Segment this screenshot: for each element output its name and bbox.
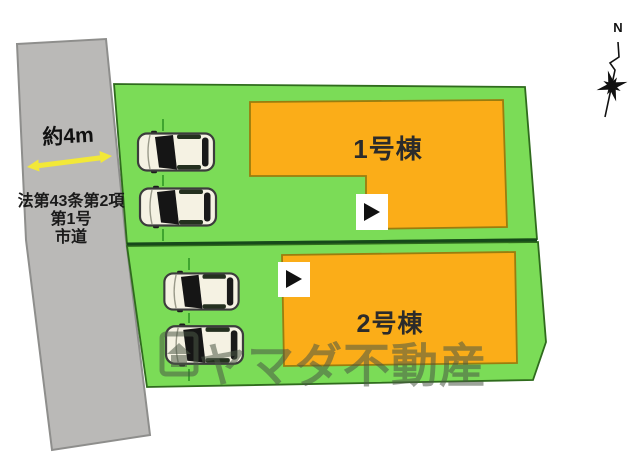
- car-icon: [140, 186, 216, 228]
- house-logo-icon: [159, 331, 199, 377]
- north-compass-icon: [592, 42, 631, 117]
- road-legal-line-2: 第1号: [4, 211, 138, 229]
- compass-north-label: N: [608, 20, 628, 35]
- road-legal-line-1: 法第43条第2項: [4, 193, 138, 211]
- watermark-text: ヤマダ不動産: [199, 327, 487, 396]
- road-width-label: 約4m: [23, 118, 112, 153]
- building-1-label: 1号棟: [328, 129, 448, 166]
- road-legal-line-3: 市道: [4, 229, 138, 247]
- road-legal-text: 法第43条第2項 第1号 市道: [4, 193, 138, 247]
- car-icon: [138, 131, 214, 173]
- entrance-marker-building-2: [278, 262, 310, 297]
- entrance-marker-building-1: [356, 194, 388, 230]
- site-plan: 約4m 法第43条第2項 第1号 市道 1号棟 2号棟 N ヤマダ不動産: [0, 0, 640, 474]
- car-icon: [164, 271, 238, 312]
